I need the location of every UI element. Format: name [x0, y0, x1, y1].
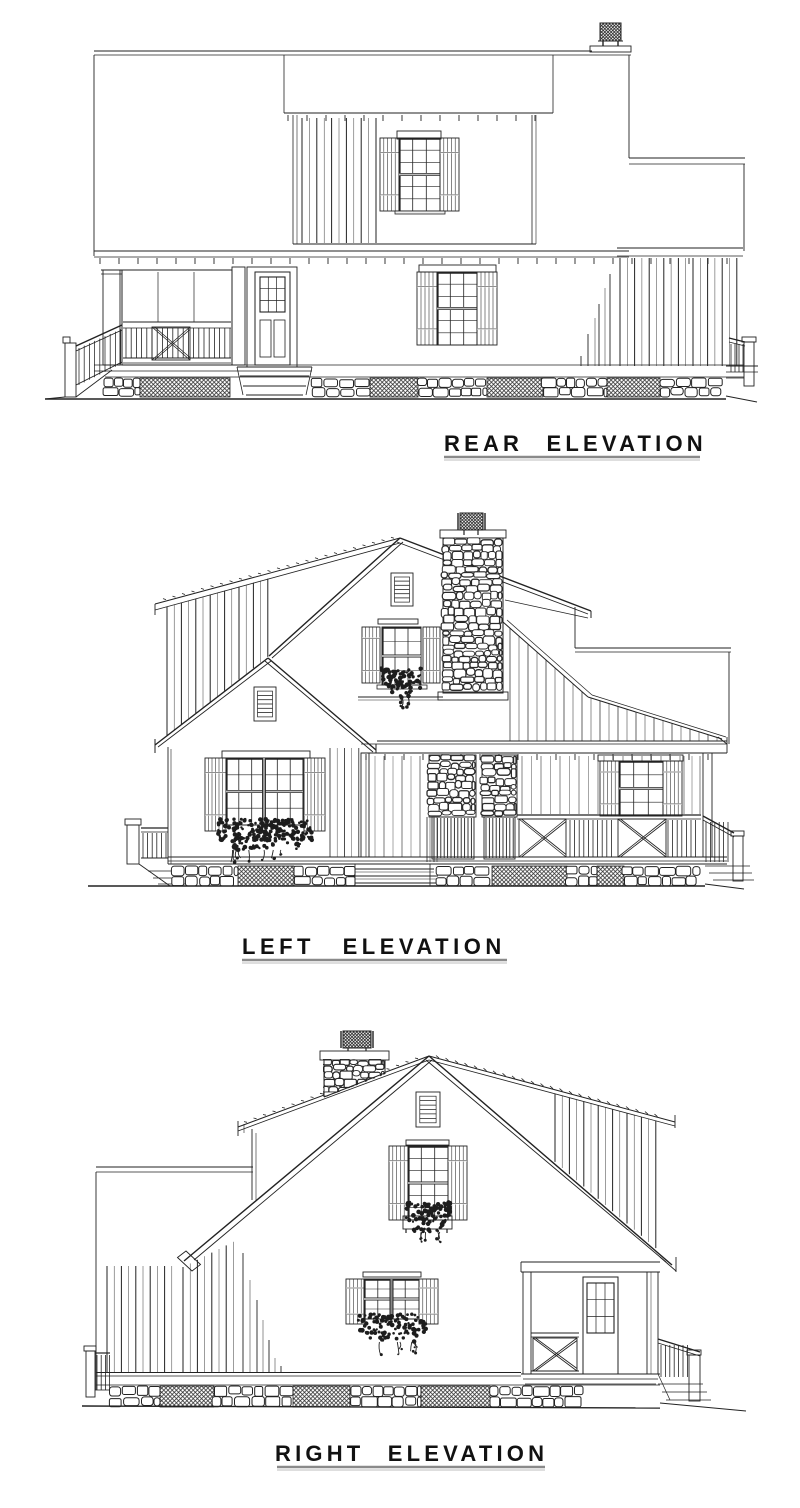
svg-text:RIGHT ELEVATION: RIGHT ELEVATION	[275, 1441, 548, 1466]
svg-text:LEFT ELEVATION: LEFT ELEVATION	[242, 934, 506, 959]
svg-text:REAR ELEVATION: REAR ELEVATION	[444, 431, 707, 456]
